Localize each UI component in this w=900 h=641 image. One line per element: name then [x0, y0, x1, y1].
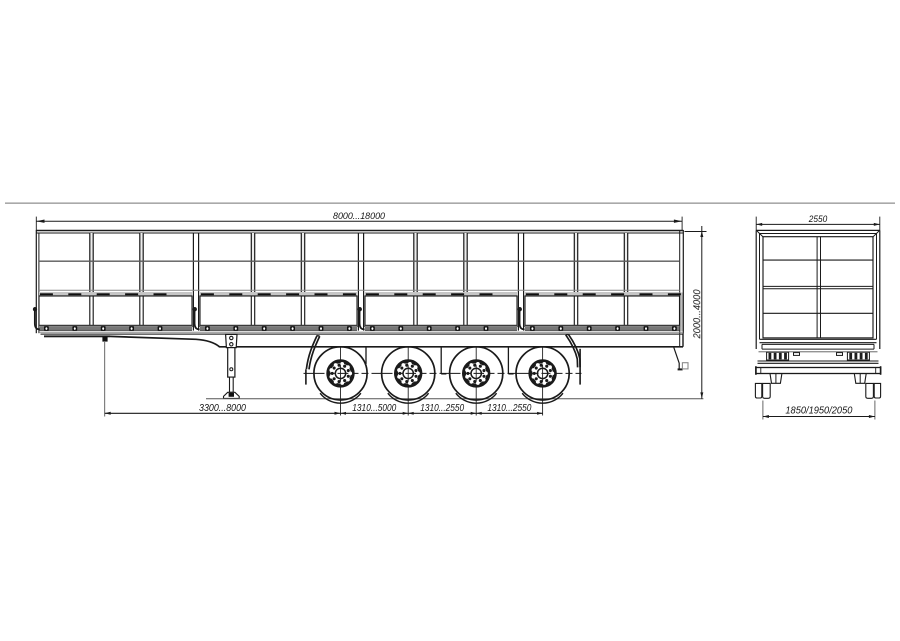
svg-text:2000...4000: 2000...4000 — [692, 289, 703, 339]
svg-text:8000...18000: 8000...18000 — [333, 211, 386, 222]
svg-text:1850/1950/2050: 1850/1950/2050 — [785, 405, 853, 416]
svg-text:1310...2550: 1310...2550 — [487, 403, 531, 414]
svg-text:1310...5000: 1310...5000 — [352, 403, 396, 414]
svg-text:2550: 2550 — [808, 214, 828, 225]
svg-text:1310...2550: 1310...2550 — [420, 403, 464, 414]
svg-text:3300...8000: 3300...8000 — [199, 403, 246, 414]
